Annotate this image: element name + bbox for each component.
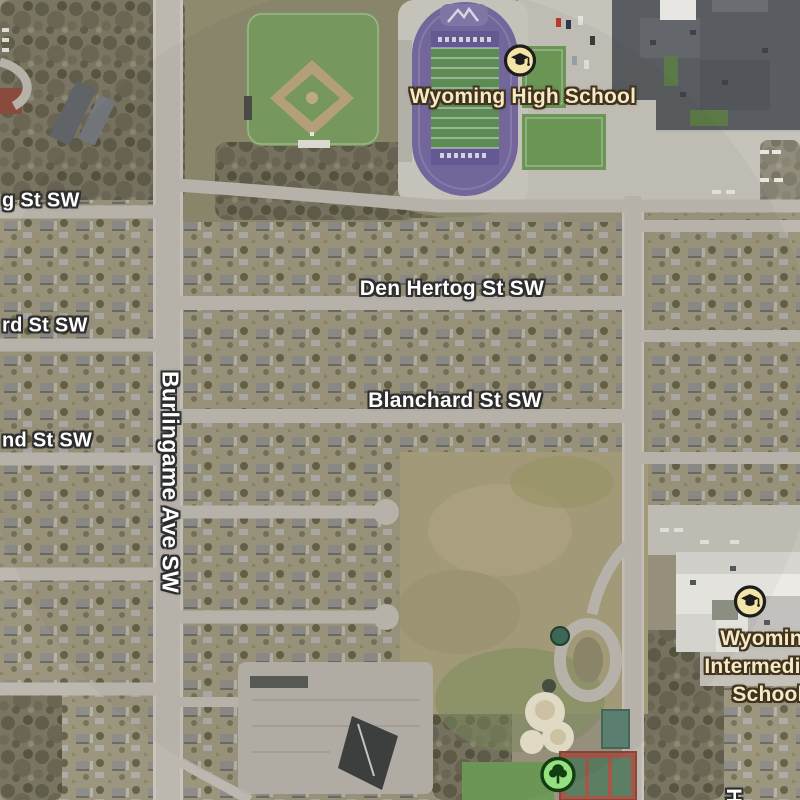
- school-icon[interactable]: [503, 44, 537, 83]
- poi-label-wyoming-high-school[interactable]: Wyoming High School: [410, 85, 636, 109]
- tree-icon[interactable]: [539, 756, 577, 799]
- map-canvas[interactable]: g St SW rd St SW nd St SW Burlingame Ave…: [0, 0, 800, 800]
- street-label-h-partial: H: [721, 788, 745, 800]
- poi-label-wyoming-intermediate-school[interactable]: Wyoming Intermediate School: [704, 625, 800, 709]
- poi-label-line: School: [704, 681, 800, 709]
- poi-label-line: Intermediate: [704, 653, 800, 681]
- street-label-burlingame-ave: Burlingame Ave SW: [157, 371, 184, 593]
- school-icon[interactable]: [733, 585, 767, 624]
- street-label-rd-st-sw: rd St SW: [2, 315, 88, 338]
- poi-label-line: Wyoming: [704, 625, 800, 653]
- street-label-blanchard: Blanchard St SW: [368, 389, 542, 413]
- street-label-g-st-sw: g St SW: [2, 190, 80, 213]
- street-label-den-hertog: Den Hertog St SW: [360, 277, 544, 301]
- street-label-nd-st-sw: nd St SW: [2, 430, 92, 453]
